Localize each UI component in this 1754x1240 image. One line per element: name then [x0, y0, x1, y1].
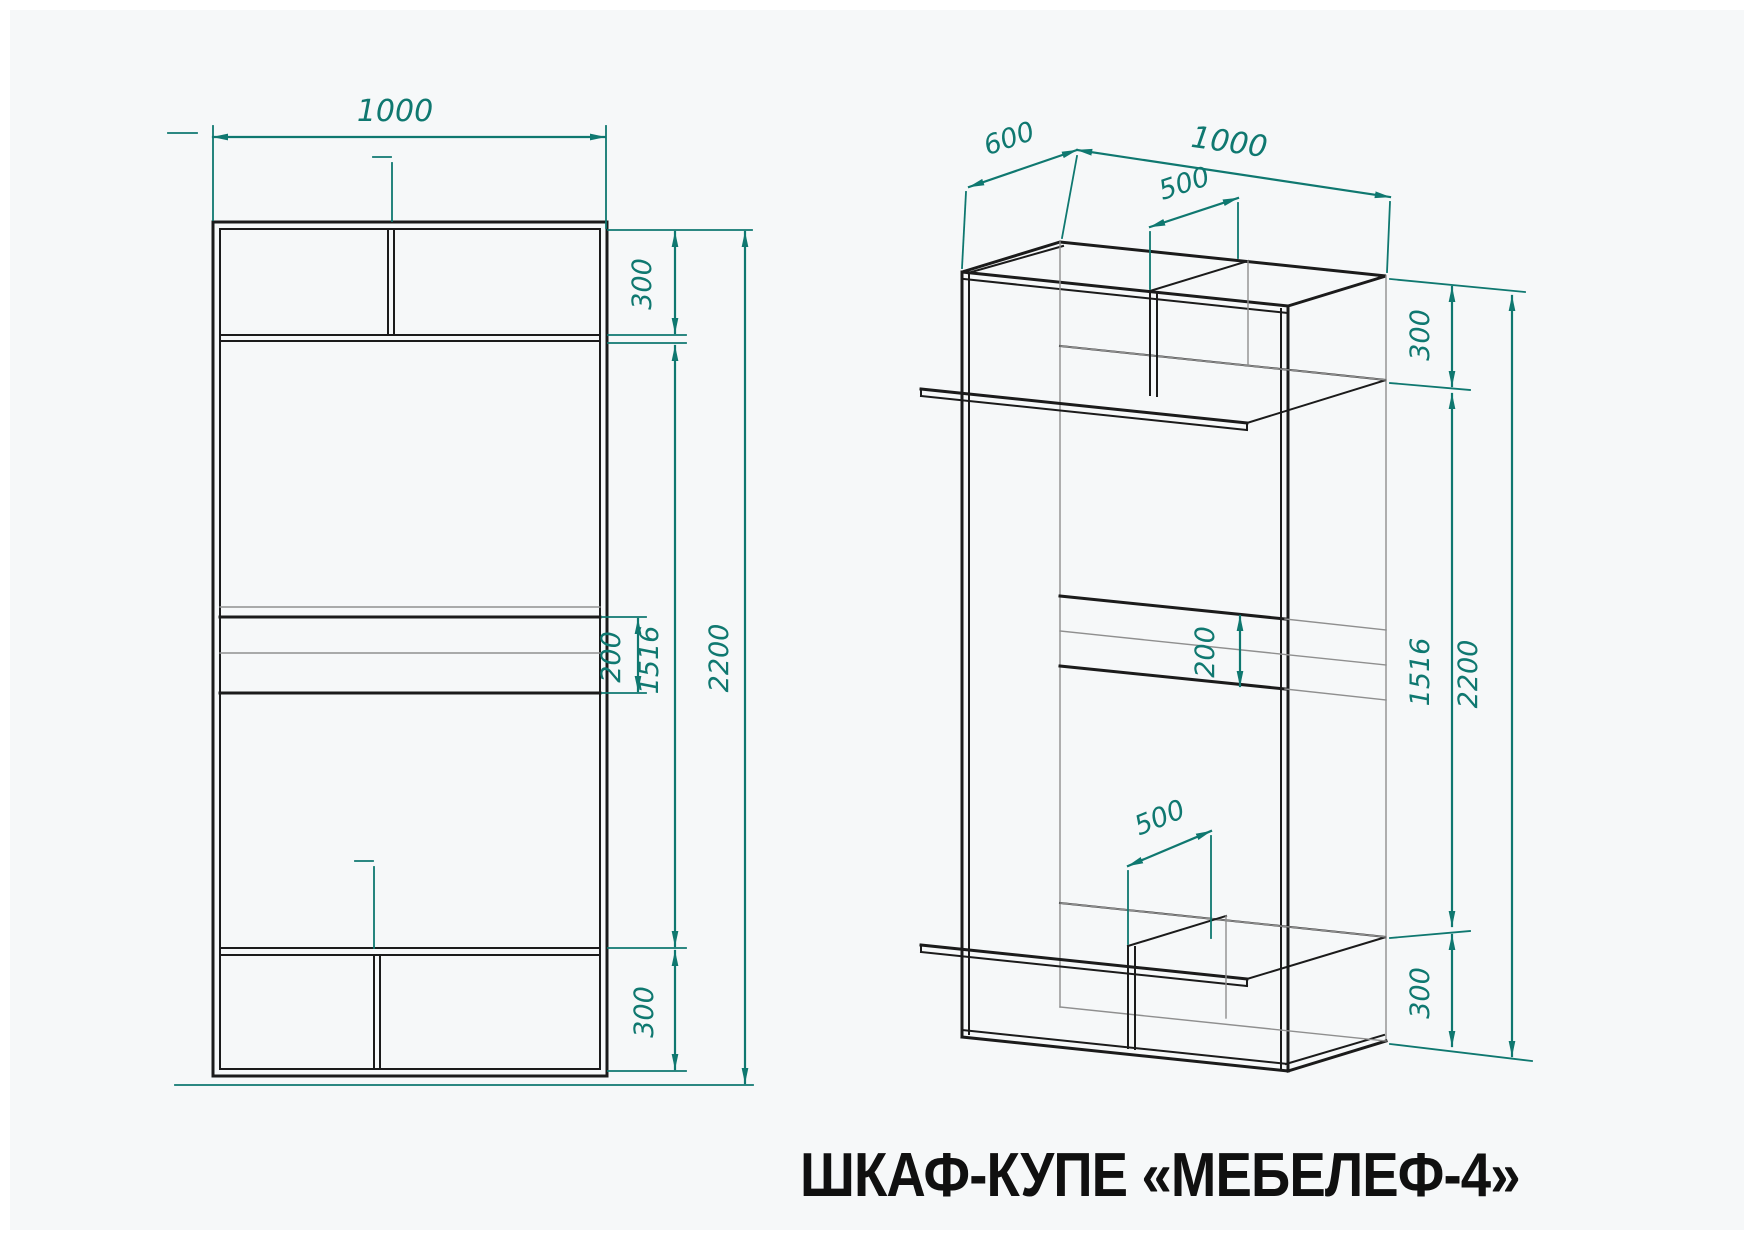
dim-front-width: 1000	[357, 94, 433, 129]
dim-iso-top-section: 300	[1405, 309, 1436, 361]
dim-front-bottom-section: 300	[629, 986, 660, 1038]
dim-iso-total: 2200	[1453, 640, 1484, 709]
dim-iso-drawer: 200	[1190, 626, 1221, 678]
isometric-view: 600 1000 500 300 1516 200	[921, 116, 1532, 1071]
dim-iso-bottom-offset: 500	[1130, 794, 1189, 842]
dim-front-total: 2200	[704, 624, 735, 693]
technical-drawing: 1000 300 1516 200 300 2200	[0, 0, 1754, 1240]
blueprint-page: 1000 300 1516 200 300 2200	[0, 0, 1754, 1240]
drawing-title: ШКАФ-КУПЕ «МЕБЕЛЕФ-4»	[800, 1140, 1520, 1211]
dim-iso-top-offset: 500	[1155, 161, 1214, 206]
dim-front-top-section: 300	[627, 258, 658, 310]
dim-iso-depth: 600	[980, 116, 1039, 162]
front-view: 1000 300 1516 200 300 2200	[168, 94, 753, 1085]
dim-iso-bottom-section: 300	[1405, 967, 1436, 1019]
dim-front-drawer: 200	[596, 631, 627, 683]
dim-iso-width: 1000	[1189, 120, 1269, 165]
dim-iso-middle: 1516	[1405, 638, 1436, 707]
